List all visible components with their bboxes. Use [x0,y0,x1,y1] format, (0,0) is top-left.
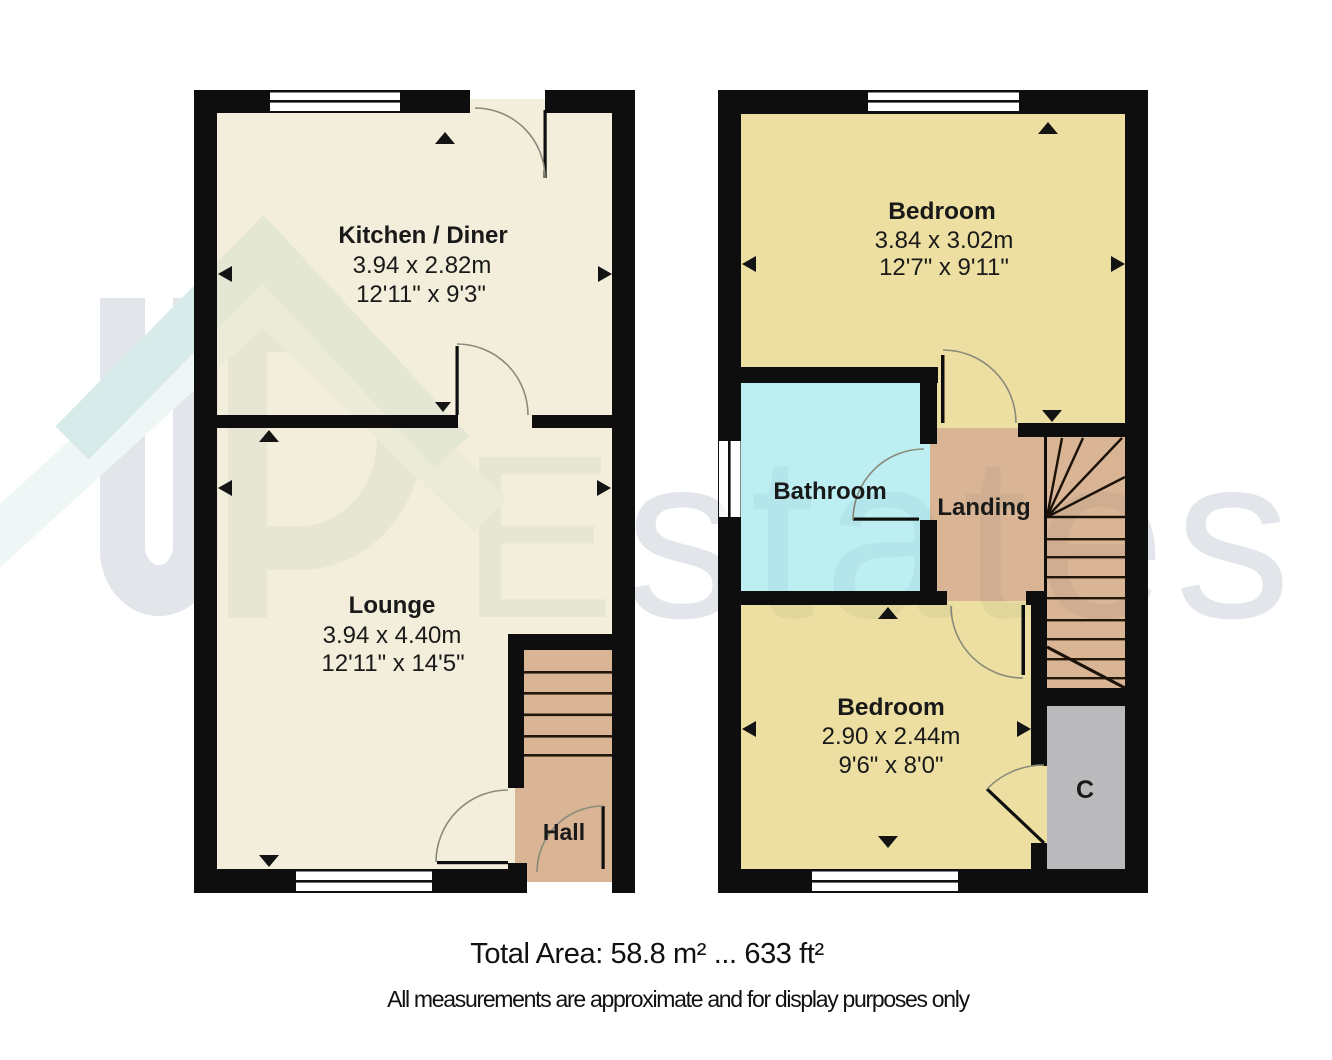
svg-text:All measurements are approxima: All measurements are approximate and for… [387,986,970,1012]
svg-text:9'6" x 8'0": 9'6" x 8'0" [839,752,944,779]
svg-text:Total Area: 58.8 m² ... 633 ft: Total Area: 58.8 m² ... 633 ft² [470,938,824,970]
svg-text:Bedroom: Bedroom [837,694,945,721]
svg-text:12'11" x 14'5": 12'11" x 14'5" [321,650,464,677]
svg-text:3.84 x 3.02m: 3.84 x 3.02m [875,227,1014,254]
svg-text:Kitchen / Diner: Kitchen / Diner [338,222,507,249]
svg-text:2.90 x 2.44m: 2.90 x 2.44m [822,723,961,750]
svg-text:3.94 x 4.40m: 3.94 x 4.40m [323,622,462,649]
svg-text:Bedroom: Bedroom [888,198,996,225]
svg-text:Lounge: Lounge [349,592,436,619]
svg-text:3.94 x 2.82m: 3.94 x 2.82m [353,252,492,279]
svg-text:12'7" x 9'11": 12'7" x 9'11" [879,254,1009,281]
svg-text:12'11" x 9'3": 12'11" x 9'3" [356,281,486,308]
svg-text:Hall: Hall [543,819,585,845]
svg-text:C: C [1076,776,1094,804]
